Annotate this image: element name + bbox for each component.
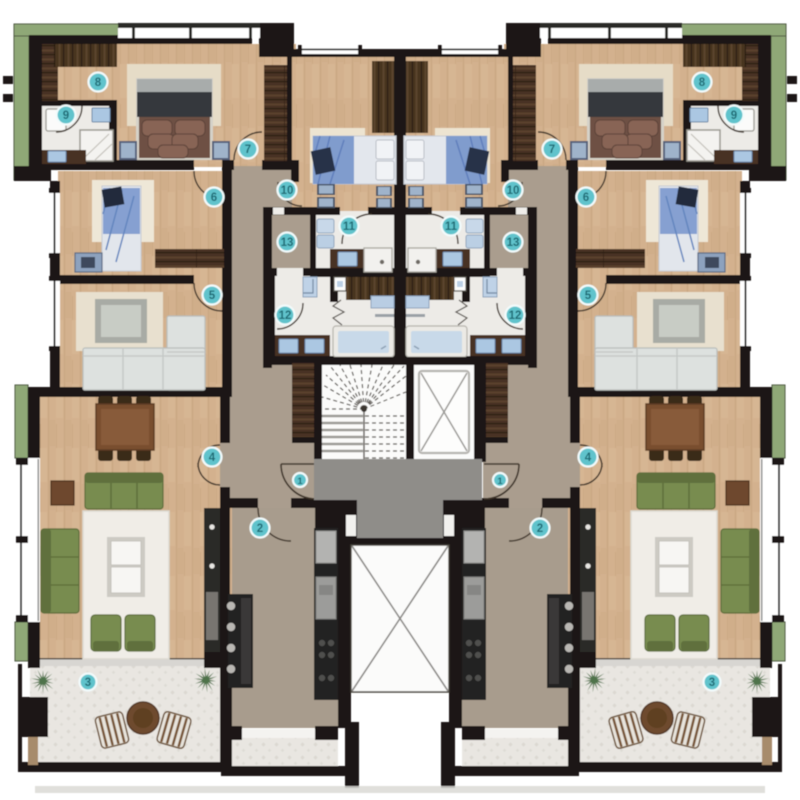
svg-text:1: 1 [297,476,303,487]
svg-text:12: 12 [509,310,522,322]
svg-text:9: 9 [63,110,69,122]
svg-text:4: 4 [209,452,216,464]
svg-text:2: 2 [257,523,263,535]
svg-text:3: 3 [85,677,91,689]
svg-text:7: 7 [549,144,555,156]
svg-text:13: 13 [507,237,520,249]
svg-text:10: 10 [281,185,294,197]
svg-text:4: 4 [585,452,592,464]
svg-text:6: 6 [583,192,589,204]
svg-text:1: 1 [497,476,503,487]
svg-text:8: 8 [699,77,706,89]
svg-text:7: 7 [245,144,251,156]
svg-text:10: 10 [507,185,520,197]
svg-text:12: 12 [279,310,292,322]
svg-text:8: 8 [95,77,102,89]
svg-text:13: 13 [281,237,294,249]
svg-text:3: 3 [709,677,715,689]
svg-text:5: 5 [209,290,216,302]
svg-text:6: 6 [211,192,217,204]
svg-text:2: 2 [537,523,543,535]
svg-text:11: 11 [445,221,458,233]
svg-text:5: 5 [585,290,592,302]
svg-text:9: 9 [731,110,737,122]
svg-text:11: 11 [343,221,356,233]
